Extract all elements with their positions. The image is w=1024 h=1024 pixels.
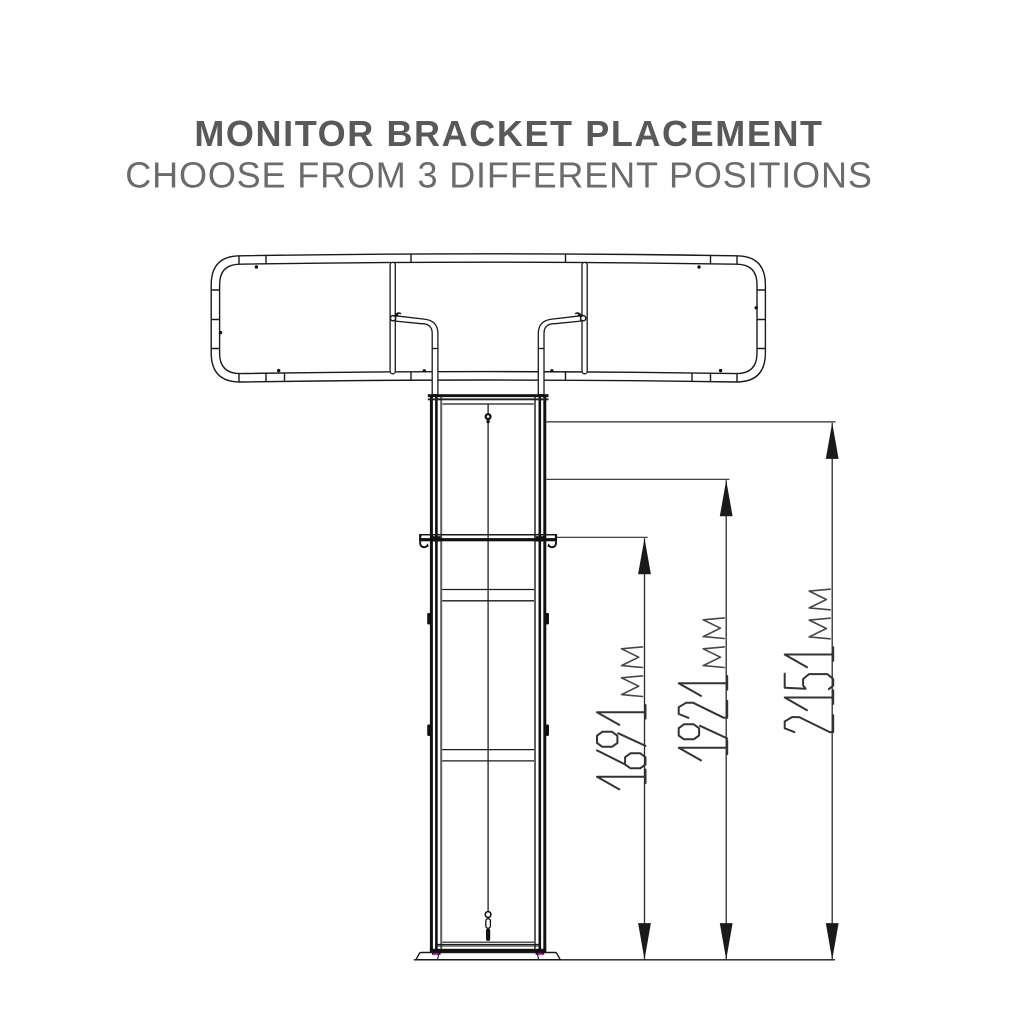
svg-text:CHOOSE FROM 3 DIFFERENT POSITI: CHOOSE FROM 3 DIFFERENT POSITIONS (125, 155, 872, 196)
svg-text:MONITOR BRACKET PLACEMENT: MONITOR BRACKET PLACEMENT (194, 113, 823, 154)
